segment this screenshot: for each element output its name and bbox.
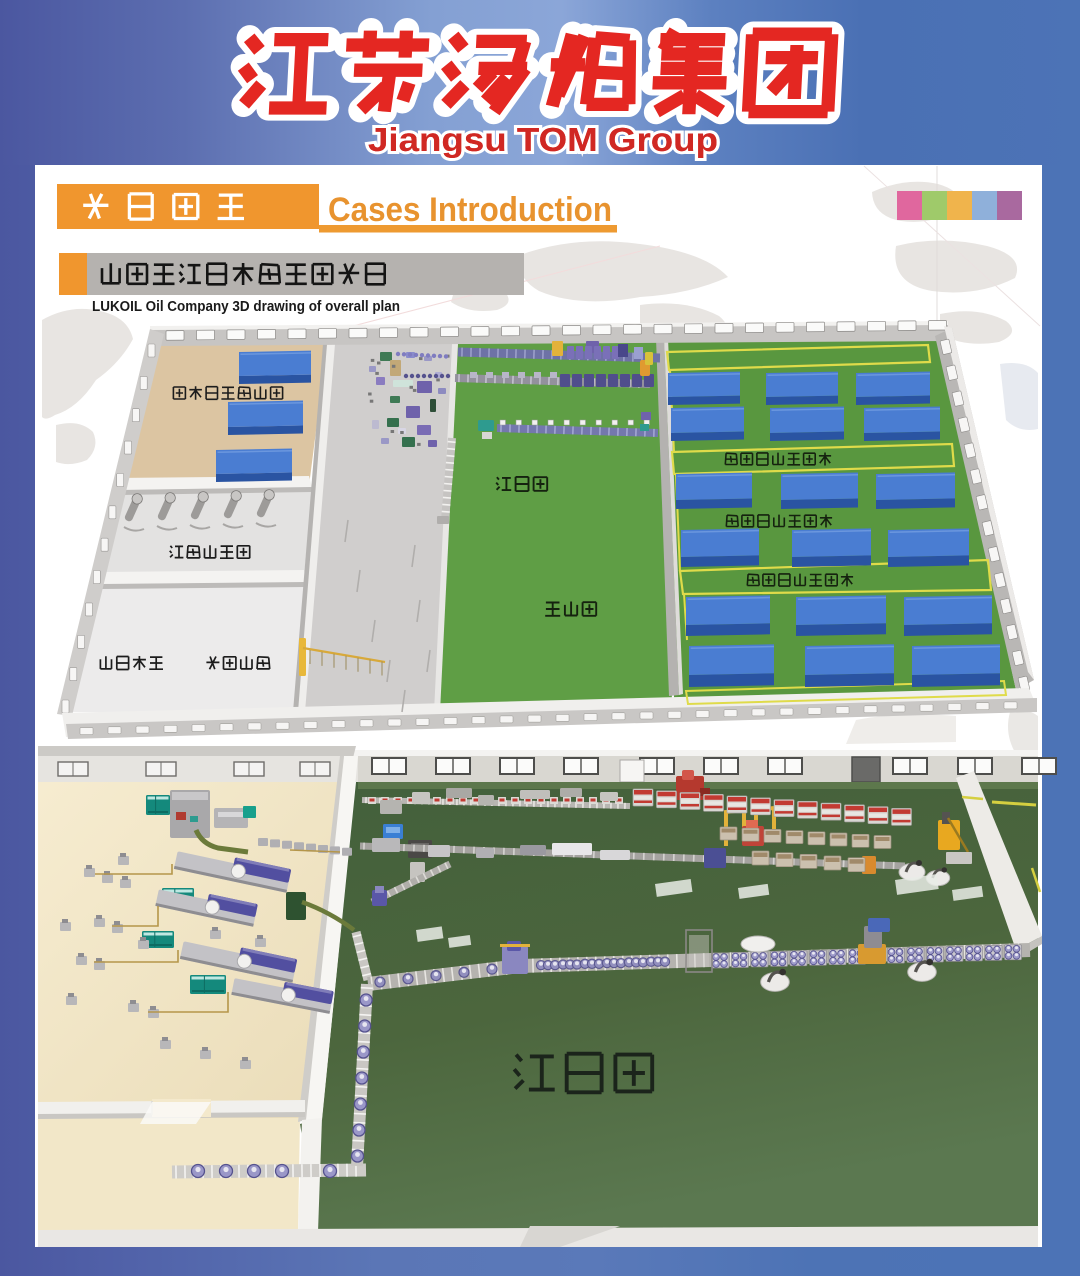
svg-text:Jiangsu TOM Group: Jiangsu TOM Group xyxy=(368,121,718,158)
svg-text:Cases Introduction: Cases Introduction xyxy=(328,191,612,229)
svg-text:LUKOIL Oil Company 3D drawing: LUKOIL Oil Company 3D drawing of overall… xyxy=(92,299,400,315)
